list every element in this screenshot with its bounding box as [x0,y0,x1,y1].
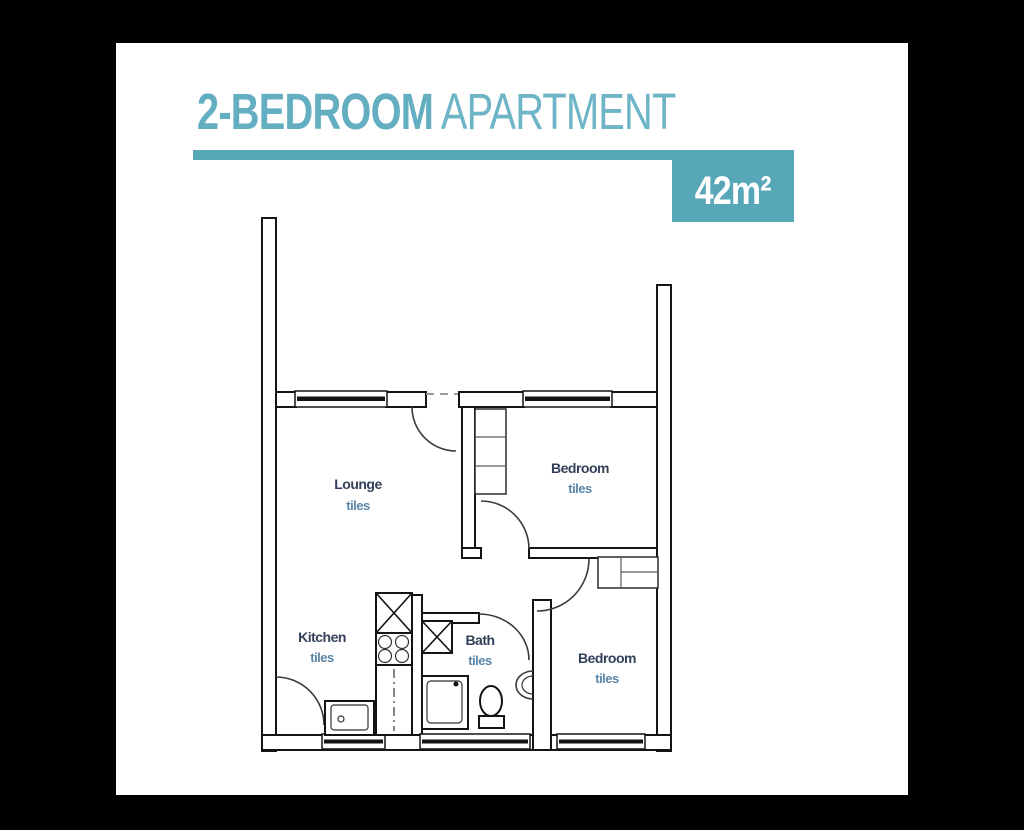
window-glazing [525,397,610,402]
window-glazing [297,397,385,402]
north-wall-segment [386,392,426,407]
room-label-bedroom1: Bedroom [551,460,609,476]
north-wall-segment [276,392,296,407]
entrance-door-swing [412,407,456,451]
kitchen-door-swing [276,677,324,725]
kitchen-fixtures [325,593,412,735]
west-wall [262,218,276,751]
lounge-bedroom-wall [462,407,475,548]
wall-end-cap [462,548,481,558]
basin-symbol [516,671,533,699]
room-finish-kitchen: tiles [310,650,334,665]
room-label-lounge: Lounge [334,476,382,492]
wardrobe-bedroom-2 [598,557,658,588]
toilet-symbol [480,686,502,716]
room-label-bath: Bath [465,632,494,648]
room-finish-bedroom2: tiles [595,671,619,686]
window-glazing [422,740,528,744]
north-wall-segment [611,392,657,407]
shower-drain [454,682,459,687]
wardrobe-outline [475,409,506,494]
north-wall-segment [459,392,524,407]
room-finish-bedroom1: tiles [568,481,592,496]
floor-plan: Lounge tiles Bedroom tiles Kitchen tiles… [0,0,1024,830]
toilet-cistern [479,716,504,728]
room-label-kitchen: Kitchen [298,629,346,645]
window-glazing [559,740,643,744]
bath-west-wall [412,595,422,735]
bedroom1-door-swing [481,501,529,549]
room-finish-lounge: tiles [346,498,370,513]
room-finish-bath: tiles [468,653,492,668]
wardrobe-bedroom-1 [475,409,506,494]
window-glazing [324,740,383,744]
bedroom2-west-wall [533,600,551,750]
room-label-bedroom2: Bedroom [578,650,636,666]
basin-bowl [522,676,533,694]
east-wall [657,285,671,751]
